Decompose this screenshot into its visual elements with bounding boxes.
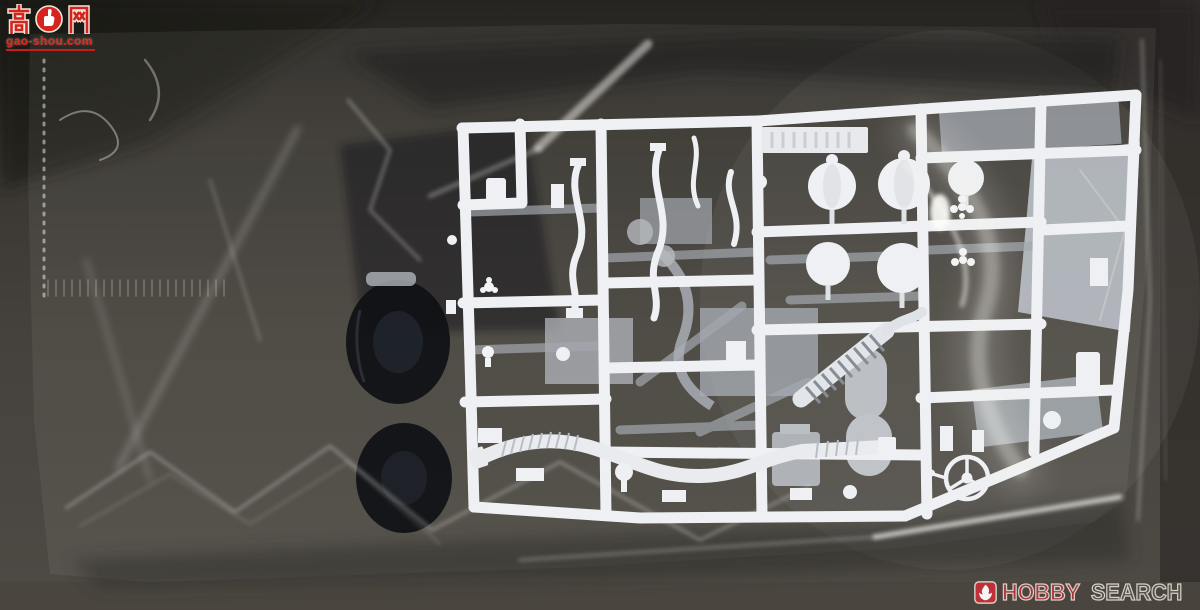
hobbysearch-word-hobby: HOBBY [1002, 581, 1080, 604]
gaoshou-watermark: gao-shou.com [6, 4, 95, 51]
flame-icon [974, 581, 997, 604]
gaoshou-domain-text: gao-shou.com [6, 35, 95, 51]
cjk-char-wang [66, 4, 92, 34]
fist-icon [34, 4, 64, 34]
hobbysearch-watermark: HOBBY SEARCH [974, 581, 1188, 604]
hobbysearch-word-search: SEARCH [1091, 581, 1182, 604]
gaoshou-logo-row [6, 4, 95, 34]
tire-top [346, 280, 450, 404]
photo-canvas [0, 0, 1200, 610]
sprue-label-tab [762, 127, 868, 153]
product-photo: gao-shou.com HOBBY SEARCH [0, 0, 1200, 610]
cjk-char-gao [6, 4, 32, 34]
